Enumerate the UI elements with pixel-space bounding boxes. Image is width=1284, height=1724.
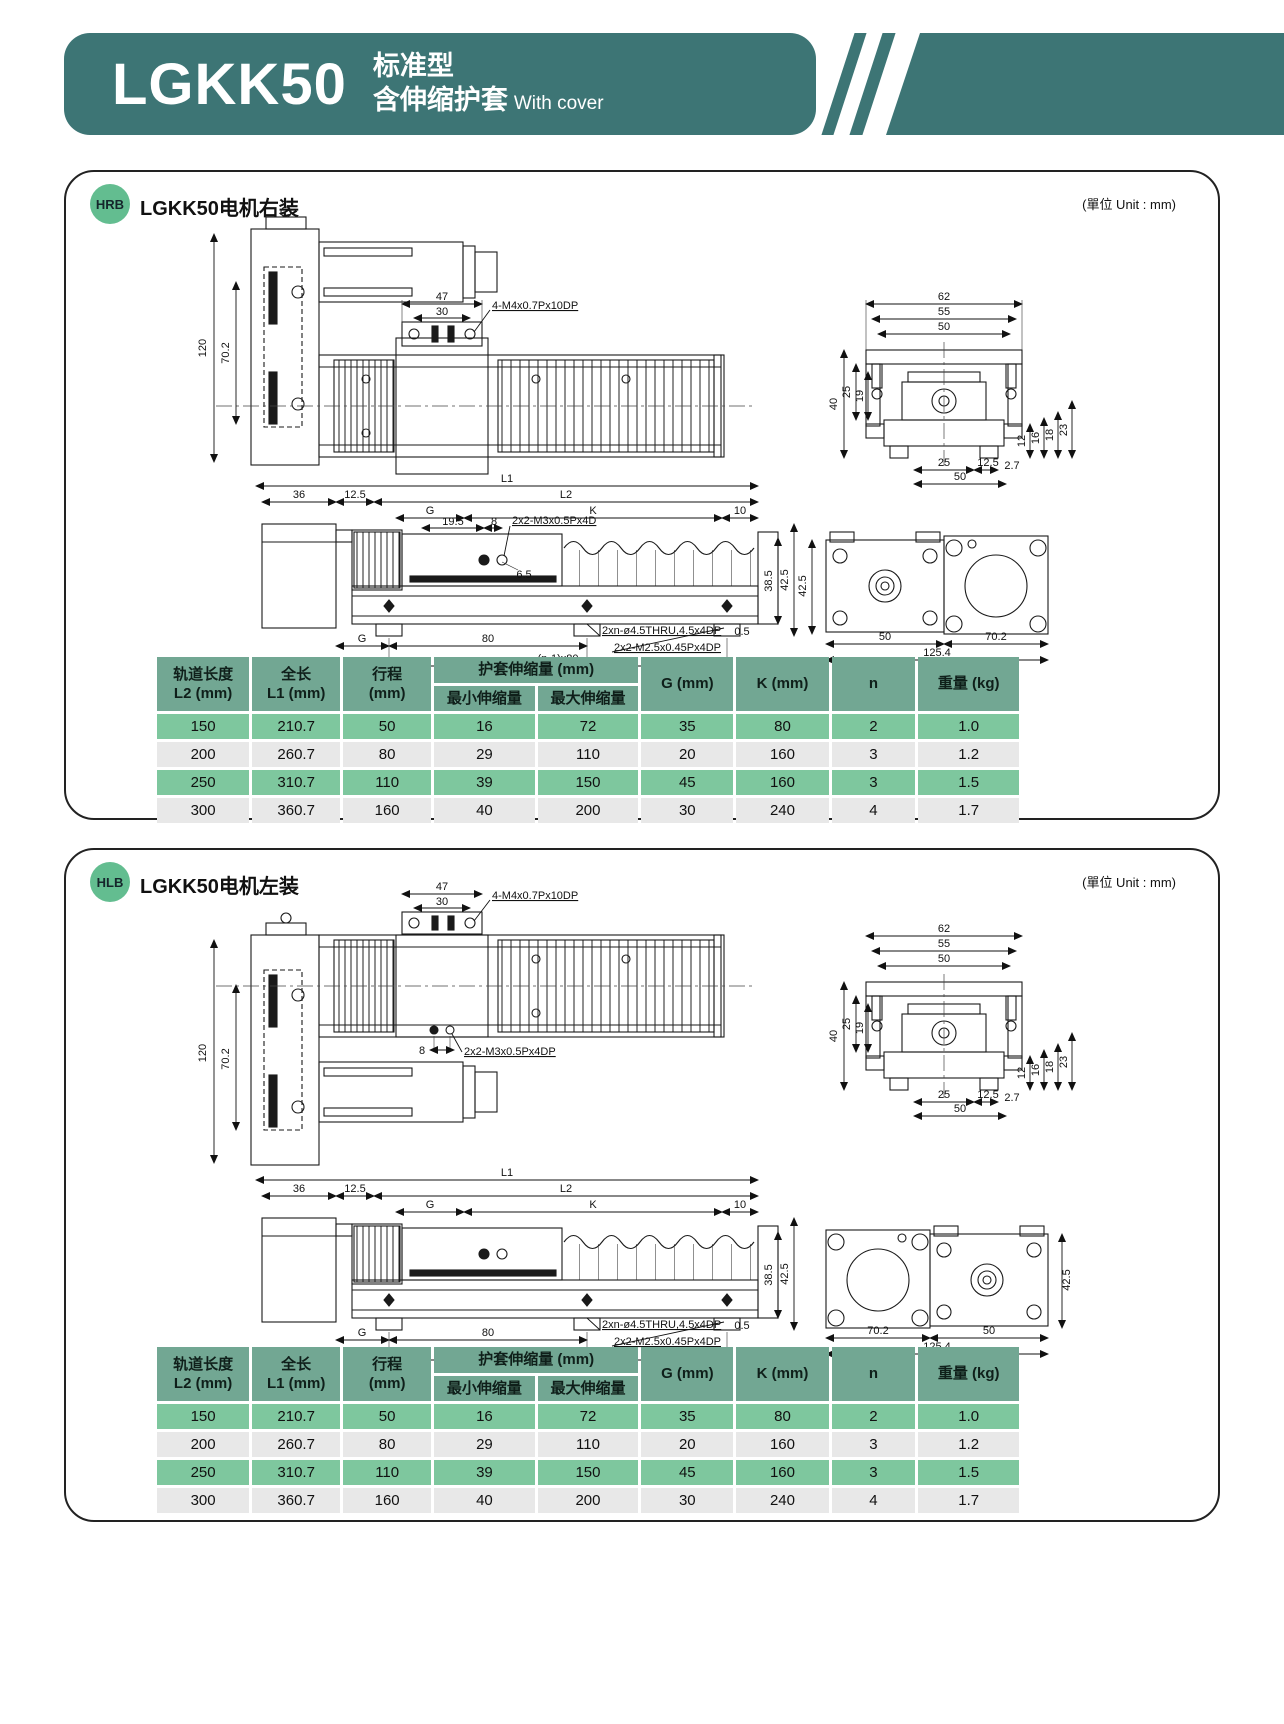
dim-label: L2 — [560, 489, 572, 501]
dim-label: 19 — [854, 1022, 866, 1034]
end-view-dims: 42.5 70.2 50 125.4 — [826, 1234, 1073, 1354]
table-row: 150210.7501672358021.0 — [157, 1404, 1019, 1429]
dim-label: L1 — [501, 1167, 513, 1179]
dim-label: 12.5 — [344, 1183, 365, 1195]
dim-label: 2xn-ø4.5THRU,4.5x4DP — [602, 1319, 721, 1331]
model-name: LGKK50 — [112, 51, 347, 118]
table-cell: 3 — [832, 742, 916, 767]
table-cell: 45 — [641, 1460, 733, 1485]
dim-label: 30 — [436, 306, 448, 318]
col-header-weight: 重量 (kg) — [918, 657, 1019, 711]
dim-label: 50 — [954, 1103, 966, 1115]
dim-label: 12 — [1016, 1067, 1028, 1079]
panel-hlb: HLB LGKK50电机左装 (單位 Unit : mm) — [64, 848, 1220, 1522]
dim-label: 12.5 — [977, 1089, 998, 1101]
table-cell: 150 — [157, 1404, 249, 1429]
dim-label: L1 — [501, 473, 513, 485]
dim-label: 50 — [983, 1325, 995, 1337]
table-cell: 35 — [641, 714, 733, 739]
dim-label: 25 — [938, 457, 950, 469]
dim-label: 70.2 — [220, 342, 232, 363]
dim-label: G — [358, 633, 367, 645]
table-cell: 150 — [157, 714, 249, 739]
dim-label: 10 — [734, 1199, 746, 1211]
table-row: 300360.7160402003024041.7 — [157, 798, 1019, 823]
table-row: 300360.7160402003024041.7 — [157, 1488, 1019, 1513]
table-cell: 150 — [538, 770, 639, 795]
col-header-g: G (mm) — [641, 1347, 733, 1401]
table-cell: 80 — [343, 1432, 431, 1457]
dim-label: 55 — [938, 306, 950, 318]
dim-label: 50 — [938, 953, 950, 965]
table-cell: 200 — [538, 1488, 639, 1513]
table-cell: 240 — [736, 798, 828, 823]
dim-label: 16 — [1030, 432, 1042, 444]
dim-label: 42.5 — [779, 569, 791, 590]
dim-label: 12 — [1016, 435, 1028, 447]
table-cell: 300 — [157, 798, 249, 823]
table-cell: 2 — [832, 714, 916, 739]
table-row: 200260.780291102016031.2 — [157, 1432, 1019, 1457]
table-cell: 210.7 — [252, 714, 340, 739]
spec-table-hrb: 轨道长度L2 (mm) 全长L1 (mm) 行程(mm) 护套伸缩量 (mm) … — [154, 654, 1022, 826]
dim-label: 40 — [828, 398, 840, 410]
cross-section-dims: 62 55 50 40 25 19 12 16 18 23 — [828, 291, 1072, 484]
col-header-cover: 护套伸缩量 (mm) — [434, 1347, 638, 1373]
table-cell: 360.7 — [252, 1488, 340, 1513]
dim-label: 10 — [734, 505, 746, 517]
table-cell: 30 — [641, 798, 733, 823]
table-cell: 2 — [832, 1404, 916, 1429]
subtitle-line2: 含伸缩护套With cover — [373, 84, 604, 118]
table-cell: 160 — [736, 1460, 828, 1485]
table-cell: 160 — [736, 770, 828, 795]
dim-label: 4-M4x0.7Px10DP — [492, 300, 578, 312]
table-cell: 80 — [343, 742, 431, 767]
table-cell: 40 — [434, 1488, 535, 1513]
col-header-l2: 轨道长度L2 (mm) — [157, 1347, 249, 1401]
table-cell: 300 — [157, 1488, 249, 1513]
dim-label: G — [426, 505, 435, 517]
table-cell: 200 — [538, 798, 639, 823]
dim-label: 19 — [854, 390, 866, 402]
dim-label: 42.5 — [1061, 1269, 1073, 1290]
table-cell: 39 — [434, 1460, 535, 1485]
table-row: 150210.7501672358021.0 — [157, 714, 1019, 739]
dim-label: 70.2 — [867, 1325, 888, 1337]
model-subtitle: 标准型 含伸缩护套With cover — [373, 50, 604, 118]
table-cell: 1.7 — [918, 1488, 1019, 1513]
table-cell: 4 — [832, 1488, 916, 1513]
col-header-k: K (mm) — [736, 1347, 828, 1401]
dim-label: 19.5 — [442, 516, 463, 528]
col-header-n: n — [832, 1347, 916, 1401]
panel-hrb: HRB LGKK50电机右装 (單位 Unit : mm) — [64, 170, 1220, 820]
dim-label: 23 — [1058, 424, 1070, 436]
col-header-min: 最小伸缩量 — [434, 1376, 535, 1402]
dim-label: 25 — [841, 386, 853, 398]
table-cell: 200 — [157, 1432, 249, 1457]
table-cell: 80 — [736, 1404, 828, 1429]
dim-label: 40 — [828, 1030, 840, 1042]
table-cell: 40 — [434, 798, 535, 823]
col-header-max: 最大伸缩量 — [538, 686, 639, 712]
dim-label: G — [358, 1327, 367, 1339]
cross-section-view — [866, 342, 1022, 468]
table-cell: 1.7 — [918, 798, 1019, 823]
dim-label: 2xn-ø4.5THRU,4.5x4DP — [602, 625, 721, 637]
dim-label: 50 — [879, 631, 891, 643]
table-cell: 29 — [434, 742, 535, 767]
table-row: 200260.780291102016031.2 — [157, 742, 1019, 767]
table-cell: 39 — [434, 770, 535, 795]
dim-label: 4-M4x0.7Px10DP — [492, 890, 578, 902]
dim-label: L2 — [560, 1183, 572, 1195]
cross-section-view — [866, 974, 1022, 1100]
datasheet-page: LGKK50 标准型 含伸缩护套With cover HRB LGKK50电机右… — [0, 0, 1284, 1724]
table-cell: 45 — [641, 770, 733, 795]
table-cell: 16 — [434, 1404, 535, 1429]
side-view — [262, 1218, 778, 1330]
dim-label: 50 — [954, 471, 966, 483]
dim-label: 2x2-M3x0.5Px4D — [512, 515, 596, 527]
dim-label: 70.2 — [220, 1048, 232, 1069]
table-cell: 210.7 — [252, 1404, 340, 1429]
table-cell: 1.0 — [918, 714, 1019, 739]
subtitle-en: With cover — [514, 93, 604, 114]
plan-view — [216, 912, 756, 1165]
dim-label: 16 — [1030, 1064, 1042, 1076]
plan-view — [216, 207, 756, 474]
col-header-l2: 轨道长度L2 (mm) — [157, 657, 249, 711]
dim-label: 18 — [1044, 1061, 1056, 1073]
table-cell: 20 — [641, 1432, 733, 1457]
table-cell: 1.2 — [918, 742, 1019, 767]
dim-label: 120 — [197, 339, 209, 357]
table-cell: 160 — [343, 1488, 431, 1513]
subtitle-line1: 标准型 — [373, 50, 604, 84]
dim-label: G — [426, 1199, 435, 1211]
dim-label: 0.5 — [734, 1320, 749, 1332]
dim-label: 2x2-M2.5x0.45Px4DP — [614, 642, 721, 654]
col-header-cover: 护套伸缩量 (mm) — [434, 657, 638, 683]
end-view — [826, 532, 1048, 634]
col-header-l1: 全长L1 (mm) — [252, 1347, 340, 1401]
dim-label: 18 — [1044, 429, 1056, 441]
table-cell: 35 — [641, 1404, 733, 1429]
dim-label: 8 — [419, 1045, 425, 1057]
dim-label: 80 — [482, 1327, 494, 1339]
table-cell: 110 — [343, 1460, 431, 1485]
table-cell: 50 — [343, 1404, 431, 1429]
table-cell: 1.5 — [918, 770, 1019, 795]
table-cell: 360.7 — [252, 798, 340, 823]
table-cell: 3 — [832, 1460, 916, 1485]
col-header-weight: 重量 (kg) — [918, 1347, 1019, 1401]
table-cell: 20 — [641, 742, 733, 767]
col-header-g: G (mm) — [641, 657, 733, 711]
spec-table-hlb: 轨道长度L2 (mm) 全长L1 (mm) 行程(mm) 护套伸缩量 (mm) … — [154, 1344, 1022, 1516]
col-header-n: n — [832, 657, 916, 711]
dim-label: 47 — [436, 291, 448, 303]
table-cell: 72 — [538, 714, 639, 739]
cross-section-dims: 62 55 50 40 25 19 12 16 18 — [828, 923, 1072, 1116]
col-header-k: K (mm) — [736, 657, 828, 711]
table-cell: 72 — [538, 1404, 639, 1429]
table-row: 250310.7110391504516031.5 — [157, 770, 1019, 795]
table-cell: 310.7 — [252, 1460, 340, 1485]
dim-label: 30 — [436, 896, 448, 908]
spec-table-body: 150210.7501672358021.0200260.78029110201… — [157, 714, 1019, 823]
decor-header-block — [886, 33, 1284, 135]
table-cell: 29 — [434, 1432, 535, 1457]
end-view — [826, 1226, 1048, 1328]
table-cell: 250 — [157, 1460, 249, 1485]
dim-label: 12.5 — [977, 457, 998, 469]
table-cell: 1.0 — [918, 1404, 1019, 1429]
dim-label: 8 — [491, 516, 497, 528]
dim-label: 36 — [293, 1183, 305, 1195]
col-header-min: 最小伸缩量 — [434, 686, 535, 712]
table-cell: 4 — [832, 798, 916, 823]
table-cell: 160 — [736, 742, 828, 767]
table-cell: 1.5 — [918, 1460, 1019, 1485]
table-cell: 110 — [538, 1432, 639, 1457]
dim-label: 2.7 — [1004, 1092, 1019, 1104]
col-header-stroke: 行程(mm) — [343, 1347, 431, 1401]
dim-label: 23 — [1058, 1056, 1070, 1068]
table-cell: 80 — [736, 714, 828, 739]
table-cell: 310.7 — [252, 770, 340, 795]
table-cell: 260.7 — [252, 1432, 340, 1457]
dim-label: 62 — [938, 291, 950, 303]
dim-label: 2x2-M3x0.5Px4DP — [464, 1046, 556, 1058]
dim-label: 2.7 — [1004, 460, 1019, 472]
table-cell: 260.7 — [252, 742, 340, 767]
dim-label: 47 — [436, 881, 448, 893]
col-header-stroke: 行程(mm) — [343, 657, 431, 711]
header-banner: LGKK50 标准型 含伸缩护套With cover — [64, 33, 816, 135]
table-cell: 50 — [343, 714, 431, 739]
table-cell: 110 — [538, 742, 639, 767]
spec-table-body: 150210.7501672358021.0200260.78029110201… — [157, 1404, 1019, 1513]
table-cell: 240 — [736, 1488, 828, 1513]
dim-label: 55 — [938, 938, 950, 950]
dim-label: 12.5 — [344, 489, 365, 501]
dim-label: 42.5 — [797, 575, 809, 596]
table-cell: 250 — [157, 770, 249, 795]
dim-label: 42.5 — [779, 1263, 791, 1284]
table-cell: 110 — [343, 770, 431, 795]
dim-label: 25 — [841, 1018, 853, 1030]
table-cell: 3 — [832, 1432, 916, 1457]
table-cell: 160 — [343, 798, 431, 823]
table-cell: 1.2 — [918, 1432, 1019, 1457]
col-header-max: 最大伸缩量 — [538, 1376, 639, 1402]
table-cell: 150 — [538, 1460, 639, 1485]
dim-label: 50 — [938, 321, 950, 333]
table-cell: 30 — [641, 1488, 733, 1513]
dim-label: K — [589, 1199, 597, 1211]
dim-label: 70.2 — [985, 631, 1006, 643]
dim-label: 6.5 — [516, 569, 531, 581]
table-row: 250310.7110391504516031.5 — [157, 1460, 1019, 1485]
dim-label: 80 — [482, 633, 494, 645]
table-cell: 16 — [434, 714, 535, 739]
dim-label: 0.5 — [734, 626, 749, 638]
dim-label: 38.5 — [763, 1264, 775, 1285]
dim-label: 25 — [938, 1089, 950, 1101]
col-header-l1: 全长L1 (mm) — [252, 657, 340, 711]
table-cell: 3 — [832, 770, 916, 795]
dim-label: 36 — [293, 489, 305, 501]
table-cell: 160 — [736, 1432, 828, 1457]
dim-label: 62 — [938, 923, 950, 935]
table-cell: 200 — [157, 742, 249, 767]
dim-label: 38.5 — [763, 570, 775, 591]
dim-label: 120 — [197, 1044, 209, 1062]
